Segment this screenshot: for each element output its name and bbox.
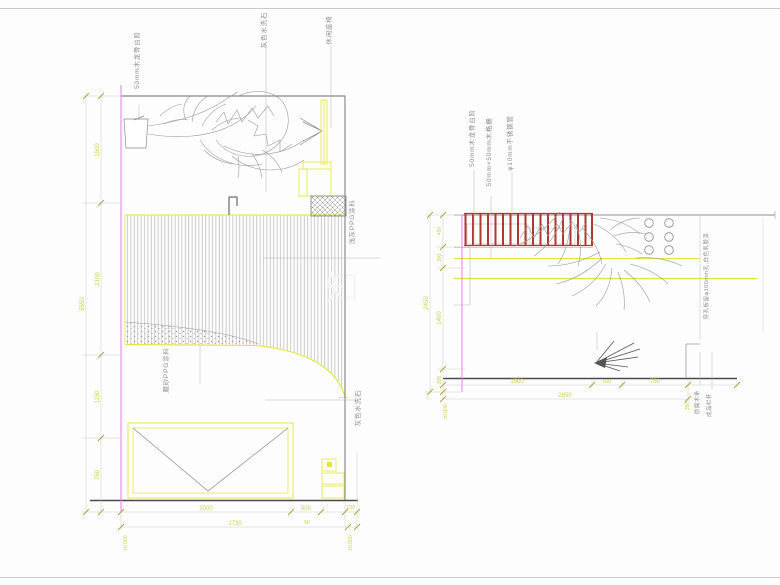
dim-text: 300 bbox=[437, 254, 443, 263]
dim-text: 2730 bbox=[228, 521, 242, 527]
dim-text: 450 bbox=[437, 227, 443, 236]
tree-sketch bbox=[148, 91, 304, 178]
dim-text-overall: 2850 bbox=[558, 393, 572, 399]
callout-washed-stone2: 灰色水洗石 bbox=[353, 390, 362, 427]
dim-text-overall: 2450 bbox=[424, 296, 430, 310]
sheet-frame bbox=[0, 9, 780, 578]
dim-text: 500 bbox=[301, 506, 312, 512]
perforation-circles bbox=[645, 219, 674, 255]
deck-yellow-lines bbox=[454, 248, 757, 279]
callout-ppg-light: 浅灰PPG涂料 bbox=[347, 199, 356, 244]
callout-grille: 50mm×50mm木格栅 bbox=[484, 117, 493, 186]
dim-text: 350 bbox=[685, 402, 691, 411]
dim-text: 750 bbox=[650, 379, 661, 385]
dim-text: 1500 bbox=[95, 143, 101, 157]
left-elevation: 知 bbox=[80, 12, 380, 551]
dim-text: 50 bbox=[304, 520, 310, 526]
dim-text: 1400 bbox=[437, 311, 443, 325]
dim-text: 600 bbox=[603, 379, 612, 385]
callout-perforated: 穿孔板留φ100mm孔,白色乳胶漆 bbox=[702, 233, 710, 320]
seat-hatch-block bbox=[311, 196, 346, 216]
callout-washed-stone: 灰色水洗石 bbox=[259, 12, 268, 49]
planter-pot bbox=[124, 119, 148, 148]
red-fence bbox=[464, 214, 593, 247]
callout-ppg-matte: 磨砂PPG涂料 bbox=[161, 347, 170, 392]
left-dim-chain: 1500 2100 1150 750 5550 bbox=[80, 93, 121, 515]
dim-text-overall: 5550 bbox=[80, 297, 86, 311]
callout-bench: 休闲座椅 bbox=[324, 15, 333, 44]
right-elevation: 50mm木龙骨台阶 50mm×50mm木格栅 φ10mm不锈钢管 穿孔板留φ10… bbox=[424, 109, 775, 420]
callout-pipe: φ10mm不锈钢管 bbox=[505, 115, 514, 170]
dim-text: 300 bbox=[437, 376, 443, 385]
watermark: 知 bbox=[325, 270, 359, 308]
curb-detail bbox=[322, 459, 344, 498]
hatch-wall bbox=[125, 215, 345, 397]
cad-canvas: 知 bbox=[0, 0, 780, 585]
callout-step: 50mm木龙骨台阶 bbox=[467, 109, 476, 167]
level-mark: ±0.000 bbox=[123, 535, 129, 550]
v-planter-box bbox=[128, 423, 293, 498]
right-callout-leaders bbox=[474, 170, 712, 390]
dim-text: 2000 bbox=[199, 506, 213, 512]
bench-section bbox=[299, 100, 346, 216]
level-mark: ±0.000 bbox=[348, 535, 354, 550]
level-mark: ±0.000 bbox=[443, 404, 449, 419]
drawing-sheet: 知 bbox=[0, 0, 780, 585]
agave-sketch bbox=[594, 332, 640, 371]
kerb-step bbox=[686, 344, 700, 378]
dim-text: 230 bbox=[347, 505, 356, 511]
callout-wood-strip: 防腐木条 bbox=[693, 390, 701, 414]
dim-text: 1500 bbox=[510, 379, 524, 385]
dim-text: 750 bbox=[95, 469, 101, 480]
callout-step: 50mm木龙骨台阶 bbox=[132, 31, 141, 89]
right-dim-chain: 450 300 1400 300 2450 bbox=[424, 212, 465, 395]
dim-text: 1150 bbox=[95, 390, 101, 404]
dim-text: 2100 bbox=[95, 272, 101, 286]
callout-handrail: 成品栏杆 bbox=[705, 393, 713, 417]
rebate-detail bbox=[229, 197, 237, 215]
downlight-sketch bbox=[300, 118, 322, 145]
